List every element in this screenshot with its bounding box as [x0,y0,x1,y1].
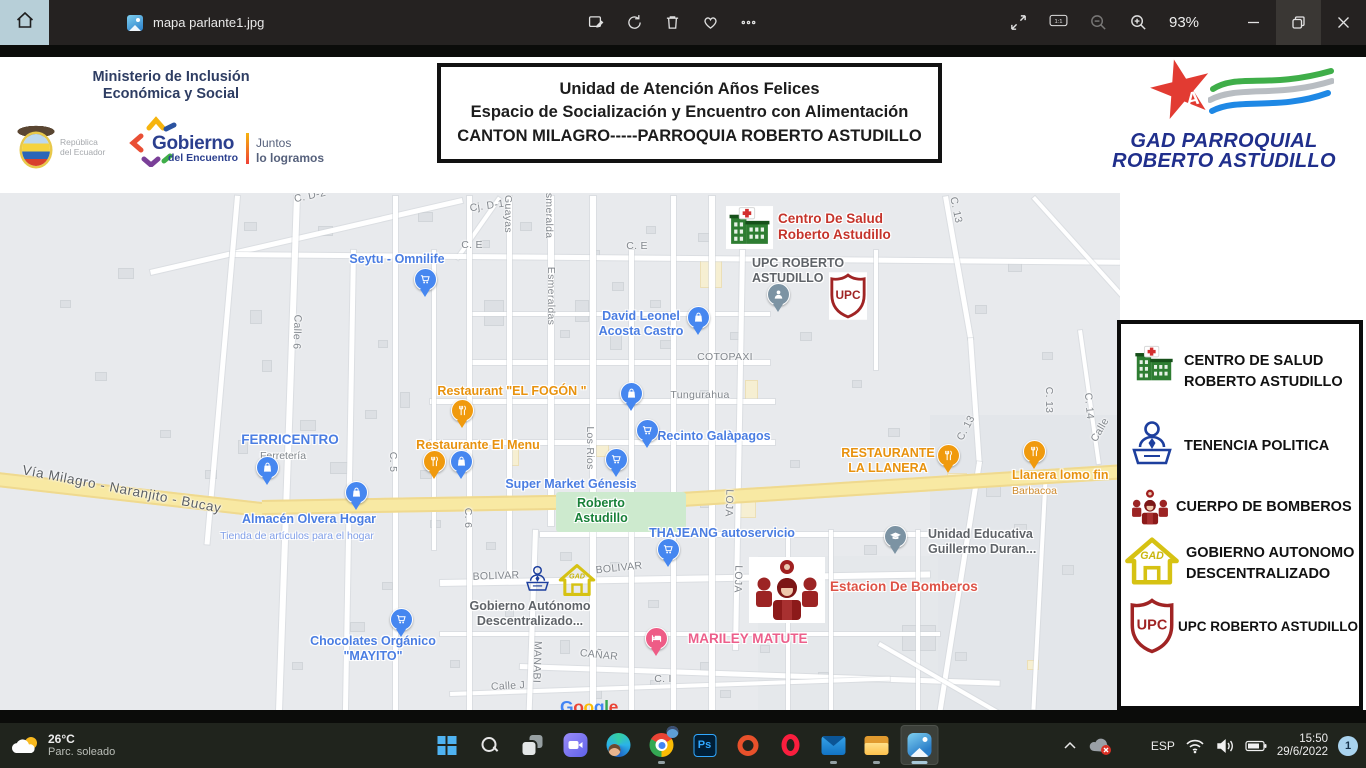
street-label: BOLIVAR [472,569,519,583]
restore-button[interactable] [1276,0,1321,45]
street-label: C. I [654,673,672,685]
street-label: C. 13 [1043,387,1055,414]
street-label: Guayas [502,195,514,233]
cart-pin-icon [414,268,437,291]
bag-pin-icon [450,450,473,473]
delete-button[interactable] [660,9,684,37]
zoom-in-button[interactable] [1126,9,1150,37]
photo-content: Ministerio de Inclusión Económica y Soci… [0,57,1366,710]
map-building [160,430,171,438]
map-building [1062,565,1074,575]
edit-image-button[interactable] [584,9,608,37]
system-tray: ESP 15:50 29/6/2022 1 [1063,723,1358,768]
grad-pin-icon [884,525,907,548]
map-place-label: FERRICENTRO [241,432,339,448]
weather-temp: 26°C [48,732,115,746]
chat-button[interactable] [557,725,595,765]
volume-icon[interactable] [1215,738,1235,754]
legend-tenencia-icon [1129,418,1175,470]
legend-item-label: UPC ROBERTO ASTUDILLO [1178,616,1358,637]
map-building [975,305,987,314]
street-label: Tungurahua [670,389,729,401]
zoom-level: 93% [1166,14,1202,31]
map-building [646,226,656,234]
street-label: Cj. D-1 [469,198,505,215]
chat-icon [564,733,588,757]
photos-app-titlebar: mapa parlante1.jpg 1:1 93% [0,0,1366,45]
map-building [790,460,800,468]
start-button[interactable] [428,725,466,765]
edge-icon [607,733,631,757]
actual-size-button[interactable]: 1:1 [1046,9,1070,37]
map-street [874,250,878,370]
bag-pin-icon [687,306,710,329]
street-label: Esmeraldas [545,267,557,325]
map-building [250,310,262,324]
street-label: MANABI [530,641,543,683]
street-label: C. D-2 [293,193,327,205]
wifi-icon[interactable] [1185,738,1205,754]
map-building [350,622,365,632]
map-street [829,530,833,710]
map-place-label: Tienda de artículos para el hogar [220,530,374,542]
food-pin-icon [451,399,474,422]
legend-item-label: CUERPO DE BOMBEROS [1176,497,1352,518]
task-view-icon [523,735,543,755]
firefighters-map-icon [748,557,826,623]
image-thumbnail-icon [127,15,143,31]
title-line-1: Unidad de Atención Años Felices [441,78,938,102]
legend-upc-shield-icon: UPC [1128,597,1176,655]
tray-date: 29/6/2022 [1277,746,1328,759]
street-label: C. E [461,239,483,251]
street-label: BOLIVAR [595,560,643,577]
tenencia-map-icon [524,564,551,594]
opera-button[interactable] [772,725,810,765]
photoshop-icon: Ps [693,734,716,757]
map-place-label: MARILEY MATUTE [688,631,808,647]
map-building [648,600,659,608]
file-explorer-icon [865,736,889,755]
map-building [365,410,377,419]
map-building [292,662,303,670]
notification-badge[interactable]: 1 [1338,736,1358,756]
image-toolbar [584,0,760,45]
search-icon [481,736,499,754]
legend-item-label: TENENCIA POLITICA [1184,436,1329,457]
svg-text:1:1: 1:1 [1054,19,1062,25]
street-label: C. 5 [387,452,399,472]
street-label: C. 6 [462,508,474,528]
weather-icon [10,735,40,757]
image-tab-title: mapa parlante1.jpg [153,15,264,30]
svg-text:GAD: GAD [569,571,586,580]
map-place-label: Unidad EducativaGuillermo Duran... [928,527,1036,557]
map-place-label: RESTAURANTELA LLANERA [841,446,935,476]
del-encuentro-wordmark: del Encuentro [168,152,238,164]
map-building [1042,352,1053,360]
map-place-label: Chocolates Orgánico"MAYITO" [310,634,436,664]
map-place-label: Gobierno AutónomoDescentralizado... [469,599,590,629]
map-building [60,300,71,308]
map-building [262,360,272,372]
gad-roberto-astudillo-wordmark: ROBERTO ASTUDILLO [1112,150,1336,173]
weather-condition: Parc. soleado [48,746,115,759]
bag-pin-icon [256,456,279,479]
image-tab[interactable]: mapa parlante1.jpg [127,0,264,45]
clock[interactable]: 15:50 29/6/2022 [1277,733,1328,759]
food-pin-icon [423,450,446,473]
language-indicator[interactable]: ESP [1151,739,1175,753]
taskbar-icons: Ps [428,725,939,765]
map-place-label: Seytu - Omnilife [349,252,444,267]
bed-pin-icon [645,627,668,650]
chrome-profile-avatar [667,726,679,738]
photos-app-icon [908,733,932,757]
favorite-button[interactable] [698,9,722,37]
map-building [300,420,316,431]
tray-time: 15:50 [1277,733,1328,746]
edge-button[interactable] [600,725,638,765]
map-building [888,428,900,437]
map-building [118,268,134,279]
opera-icon [782,734,800,756]
map-legend: CENTRO DE SALUDROBERTO ASTUDILLOTENENCIA… [1117,320,1363,710]
street-label: LOJA [732,565,745,593]
office-icon [737,735,758,756]
map-place-label: RobertoAstudillo [574,496,627,526]
legend-gad-house-icon: GAD [1124,533,1180,589]
street-label: Calle J [491,679,526,693]
map-place-label: Restaurant "EL FOGÓN " [437,384,586,399]
svg-text:GAD: GAD [1140,550,1164,562]
cart-pin-icon [605,448,628,471]
map-building [612,282,624,291]
mail-icon [822,736,846,755]
street-label: Calle 6 [290,314,303,349]
taskbar: 26°C Parc. soleado Ps ESP [0,723,1366,768]
map-street [1032,196,1120,310]
map-building [560,640,570,654]
cart-pin-icon [390,608,413,631]
task-view-button[interactable] [514,725,552,765]
legend-hospital-icon [1132,344,1176,386]
chrome-button[interactable] [643,725,681,765]
map-street [671,196,676,710]
windows-logo-icon [437,736,456,755]
svg-text:UPC: UPC [835,288,860,302]
weather-widget[interactable]: 26°C Parc. soleado [10,723,115,768]
ecuador-coat-of-arms-icon [14,124,58,170]
map-building [95,372,107,381]
window-controls [1231,0,1366,45]
street-label: Los Rios [584,426,596,469]
gallery-home-button[interactable] [0,0,49,45]
minimize-button[interactable] [1231,0,1276,45]
map-place-label: Centro De SaludRoberto Astudillo [778,211,891,243]
mail-button[interactable] [815,725,853,765]
map-place-label: Barbacoa [1012,485,1057,497]
map-building [418,212,433,222]
map-place-label: Llanera lomo fin [1012,468,1109,483]
street-label: Esmeralda [543,193,555,238]
file-explorer-button[interactable] [858,725,896,765]
map-building [955,652,967,661]
more-options-button[interactable] [736,9,760,37]
close-button[interactable] [1321,0,1366,45]
street-label: COTOPAXI [697,351,753,363]
cart-pin-icon [657,538,680,561]
food-pin-icon [1023,440,1046,463]
food-pin-icon [937,444,960,467]
map-street [916,530,920,710]
map-canvas: C. D-2Cj. D-1C. EC. EGuayasEsmeraldaEsme… [0,193,1120,710]
map-building [560,330,570,338]
map-place-label: Recinto Galàpagos [657,429,770,444]
person-pin-icon [767,283,790,306]
map-building [400,392,410,408]
cart-pin-icon [636,419,659,442]
rotate-button[interactable] [622,9,646,37]
gad-house-map-icon: GAD [558,562,596,598]
republica-del-ecuador-label: República del Ecuador [60,137,105,157]
office-button[interactable] [729,725,767,765]
map-building [852,380,862,388]
street-label: C. E [626,240,648,252]
map-title-box: Unidad de Atención Años Felices Espacio … [437,63,942,163]
zoom-toolbar: 1:1 93% [1006,0,1202,45]
map-building [800,332,812,341]
photoshop-button[interactable]: Ps [686,725,724,765]
logo-divider [246,133,249,164]
map-building-highlight [745,380,758,400]
map-building [486,542,496,550]
one-to-one-icon: 1:1 [1049,11,1068,35]
map-place-label: Estacion De Bomberos [830,579,978,595]
street-label: CAÑAR [579,647,618,663]
title-line-3: CANTON MILAGRO-----PARROQUIA ROBERTO AST… [441,125,938,149]
bag-pin-icon [345,481,368,504]
legend-item-label: CENTRO DE SALUDROBERTO ASTUDILLO [1184,351,1343,393]
svg-text:UPC: UPC [1137,617,1168,633]
fullscreen-icon[interactable] [1006,9,1030,37]
search-button[interactable] [471,725,509,765]
map-building [720,690,731,698]
street-label: LOJA [723,489,736,517]
battery-icon[interactable] [1245,740,1267,752]
map-building [450,660,460,668]
legend-item-label: GOBIERNO AUTONOMODESCENTRALIZADO [1186,543,1354,585]
map-building [575,300,589,322]
map-building [244,222,257,231]
map-building [864,545,877,555]
upc-shield-map-icon: UPC [829,272,867,320]
street-label: C. 14 [1082,392,1096,420]
title-line-2: Espacio de Socialización y Encuentro con… [441,101,938,125]
gad-swoosh-icon [1208,65,1334,126]
onedrive-error-icon[interactable] [1087,736,1113,756]
ministry-logo-text: Ministerio de Inclusión Económica y Soci… [92,69,249,103]
map-place-label: David LeonelAcosta Castro [599,309,684,339]
desktop: mapa parlante1.jpg 1:1 93% Ministerio de… [0,0,1366,768]
map-building [378,340,388,348]
photos-app-button[interactable] [901,725,939,765]
map-street [205,196,240,545]
hospital-map-icon [726,206,773,249]
map-building [560,552,572,561]
tray-chevron-icon[interactable] [1063,741,1077,751]
map-building [650,300,661,308]
zoom-out-button[interactable] [1086,9,1110,37]
map-building [382,582,393,590]
map-building [520,222,532,231]
home-icon [14,9,36,36]
map-building [330,462,348,474]
google-watermark: Google [560,697,618,710]
slogan-text: Juntos lo logramos [256,136,324,166]
legend-firefighters-icon [1128,487,1172,527]
bag-pin-icon [620,382,643,405]
